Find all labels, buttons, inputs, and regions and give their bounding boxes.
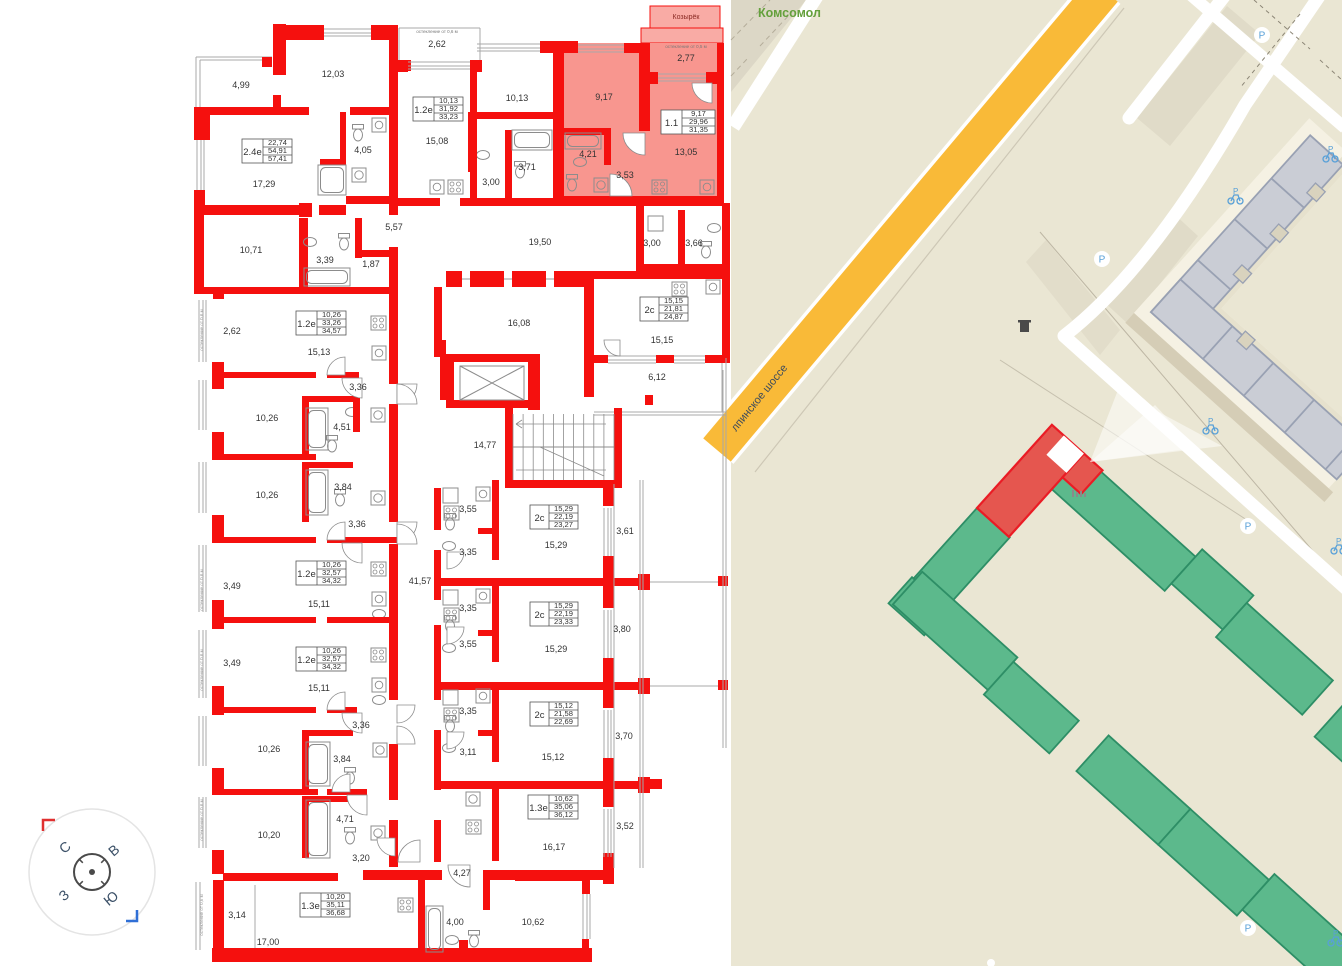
svg-text:6,12: 6,12 xyxy=(648,372,666,382)
svg-text:24,87: 24,87 xyxy=(664,312,683,321)
svg-text:4,51: 4,51 xyxy=(333,422,351,432)
svg-text:3,36: 3,36 xyxy=(349,382,367,392)
svg-text:10,71: 10,71 xyxy=(240,245,263,255)
svg-text:Козырёк: Козырёк xyxy=(673,14,701,21)
svg-text:P: P xyxy=(1333,929,1338,938)
svg-text:1.2е: 1.2е xyxy=(297,319,316,330)
svg-text:P: P xyxy=(1328,145,1333,154)
svg-text:P: P xyxy=(1245,924,1252,935)
svg-text:16,17: 16,17 xyxy=(543,842,566,852)
svg-text:3,36: 3,36 xyxy=(348,519,366,529)
svg-text:4,27: 4,27 xyxy=(453,868,471,878)
svg-text:остекление от 0,5 м: остекление от 0,5 м xyxy=(665,44,706,49)
svg-text:остекление от 0,6 м: остекление от 0,6 м xyxy=(416,29,457,34)
svg-text:34,57: 34,57 xyxy=(322,326,341,335)
svg-text:23,33: 23,33 xyxy=(554,617,573,626)
svg-text:10,13: 10,13 xyxy=(506,93,529,103)
svg-text:3,55: 3,55 xyxy=(459,504,477,514)
svg-text:3,36: 3,36 xyxy=(352,720,370,730)
svg-text:3,39: 3,39 xyxy=(316,255,334,265)
svg-text:остекление от 0,6 м: остекление от 0,6 м xyxy=(199,309,204,350)
svg-text:3,11: 3,11 xyxy=(460,747,477,757)
svg-text:23,27: 23,27 xyxy=(554,520,573,529)
svg-text:3,71: 3,71 xyxy=(518,162,536,172)
svg-text:3,61: 3,61 xyxy=(616,526,634,536)
svg-text:3,49: 3,49 xyxy=(223,658,241,668)
svg-text:5,57: 5,57 xyxy=(385,222,403,232)
svg-text:3,35: 3,35 xyxy=(459,603,477,613)
svg-text:16,08: 16,08 xyxy=(508,318,531,328)
svg-text:3,00: 3,00 xyxy=(643,238,661,248)
svg-text:3,53: 3,53 xyxy=(616,170,634,180)
svg-text:3,52: 3,52 xyxy=(616,821,634,831)
svg-text:15,08: 15,08 xyxy=(426,136,449,146)
svg-text:15,11: 15,11 xyxy=(308,599,330,609)
svg-text:2,77: 2,77 xyxy=(677,53,695,63)
svg-text:57,41: 57,41 xyxy=(268,154,287,163)
svg-text:1.3е: 1.3е xyxy=(529,803,548,814)
svg-text:10,62: 10,62 xyxy=(522,917,545,927)
svg-text:остекление от 0,6 м: остекление от 0,6 м xyxy=(199,799,204,840)
svg-text:3,20: 3,20 xyxy=(352,853,370,863)
svg-text:3,35: 3,35 xyxy=(459,547,477,557)
svg-text:остекление от 0,6 м: остекление от 0,6 м xyxy=(199,569,204,610)
svg-text:3,35: 3,35 xyxy=(459,706,477,716)
svg-text:10,20: 10,20 xyxy=(258,830,281,840)
svg-text:2,62: 2,62 xyxy=(223,326,241,336)
svg-text:36,68: 36,68 xyxy=(326,908,345,917)
svg-text:36,12: 36,12 xyxy=(554,810,573,819)
svg-text:31,35: 31,35 xyxy=(689,125,708,134)
svg-text:34,32: 34,32 xyxy=(322,576,341,585)
svg-text:22,69: 22,69 xyxy=(554,717,573,726)
svg-text:1.1: 1.1 xyxy=(665,118,678,129)
svg-text:1.3е: 1.3е xyxy=(301,901,320,912)
svg-text:P: P xyxy=(1336,537,1341,546)
svg-text:4,05: 4,05 xyxy=(354,145,372,155)
svg-text:4,00: 4,00 xyxy=(446,917,464,927)
svg-text:1,87: 1,87 xyxy=(362,259,380,269)
svg-text:15,12: 15,12 xyxy=(542,752,565,762)
svg-text:3,66: 3,66 xyxy=(685,238,703,248)
svg-text:15,11: 15,11 xyxy=(308,683,330,693)
svg-text:12,03: 12,03 xyxy=(322,69,345,79)
svg-text:10,26: 10,26 xyxy=(258,744,281,754)
svg-text:3,55: 3,55 xyxy=(459,639,477,649)
svg-text:P: P xyxy=(1099,255,1106,266)
svg-text:P: P xyxy=(1245,522,1252,533)
svg-text:33,23: 33,23 xyxy=(439,112,458,121)
svg-text:15,29: 15,29 xyxy=(545,644,568,654)
svg-text:10,26: 10,26 xyxy=(256,490,279,500)
svg-text:15,13: 15,13 xyxy=(308,347,331,357)
svg-text:2с: 2с xyxy=(534,513,544,524)
svg-text:17,00: 17,00 xyxy=(257,937,280,947)
svg-text:P: P xyxy=(1259,31,1266,42)
svg-text:4,99: 4,99 xyxy=(232,80,250,90)
svg-text:остекление от 0,6 м: остекление от 0,6 м xyxy=(199,894,204,935)
svg-text:2,62: 2,62 xyxy=(428,39,446,49)
svg-text:1.2е: 1.2е xyxy=(414,105,433,116)
svg-text:P: P xyxy=(1233,187,1238,196)
svg-text:2.4е: 2.4е xyxy=(243,147,262,158)
svg-text:3,84: 3,84 xyxy=(333,754,351,764)
svg-text:41,57: 41,57 xyxy=(409,576,432,586)
svg-text:3,80: 3,80 xyxy=(613,624,631,634)
svg-text:13,05: 13,05 xyxy=(675,147,698,157)
svg-text:10,26: 10,26 xyxy=(256,413,279,423)
svg-text:1.2е: 1.2е xyxy=(297,655,316,666)
svg-text:2с: 2с xyxy=(534,710,544,721)
svg-text:3,70: 3,70 xyxy=(615,731,633,741)
svg-text:1.2е: 1.2е xyxy=(297,569,316,580)
svg-text:2с: 2с xyxy=(644,305,654,316)
svg-text:19,50: 19,50 xyxy=(529,237,552,247)
svg-text:3,00: 3,00 xyxy=(482,177,500,187)
svg-text:9,17: 9,17 xyxy=(595,92,613,102)
svg-text:14,77: 14,77 xyxy=(474,440,497,450)
svg-text:4,71: 4,71 xyxy=(336,814,354,824)
svg-text:3,49: 3,49 xyxy=(223,581,241,591)
svg-text:Комсомол: Комсомол xyxy=(758,6,821,20)
svg-text:остекление от 0,6 м: остекление от 0,6 м xyxy=(199,649,204,690)
svg-text:15,15: 15,15 xyxy=(651,335,674,345)
svg-text:3,84: 3,84 xyxy=(334,482,352,492)
svg-text:P: P xyxy=(1208,417,1213,426)
svg-text:34,32: 34,32 xyxy=(322,662,341,671)
svg-text:17,29: 17,29 xyxy=(253,179,276,189)
svg-text:4,21: 4,21 xyxy=(579,149,597,159)
svg-text:3,14: 3,14 xyxy=(228,910,246,920)
svg-text:15,29: 15,29 xyxy=(545,540,568,550)
svg-text:2с: 2с xyxy=(534,610,544,621)
